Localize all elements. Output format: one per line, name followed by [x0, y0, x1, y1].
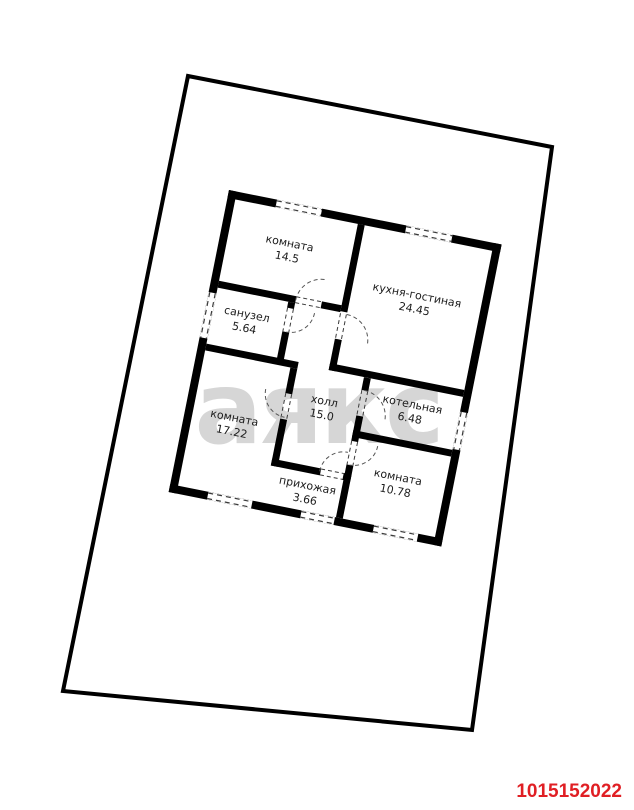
floor-plan-canvas: аякс	[0, 0, 634, 810]
listing-id: 1015152022	[516, 781, 622, 803]
floor-plan-page: аякс	[0, 0, 634, 810]
